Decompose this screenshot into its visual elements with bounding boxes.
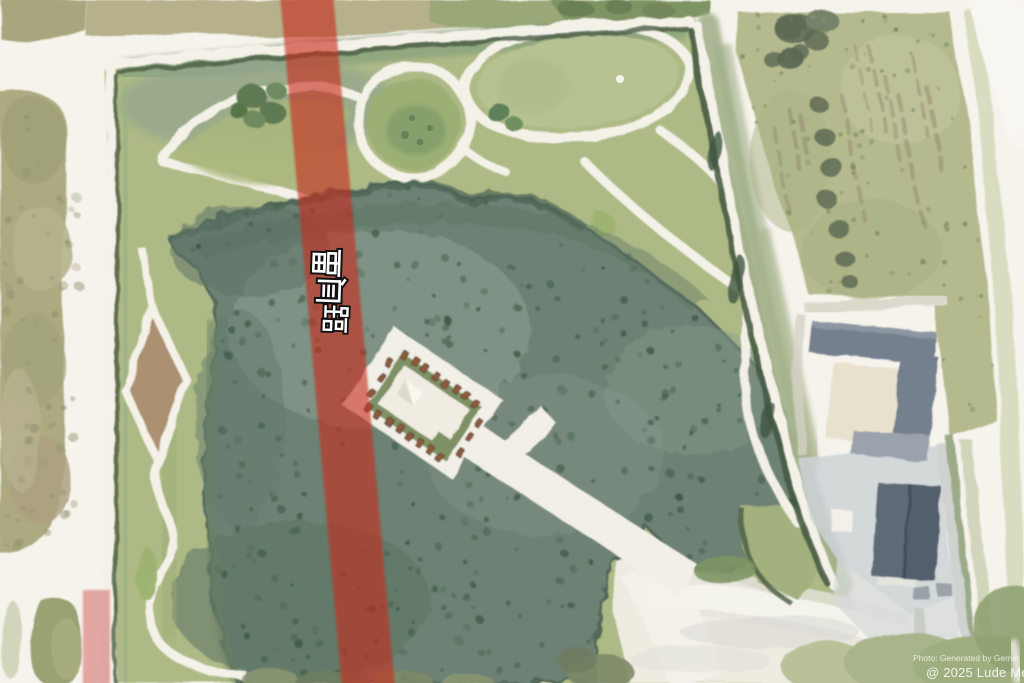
svg-text:@ 2025 Lude Med: @ 2025 Lude Med bbox=[926, 665, 1024, 680]
svg-text:Photo: Generated by Gemin: Photo: Generated by Gemin bbox=[913, 653, 1019, 663]
